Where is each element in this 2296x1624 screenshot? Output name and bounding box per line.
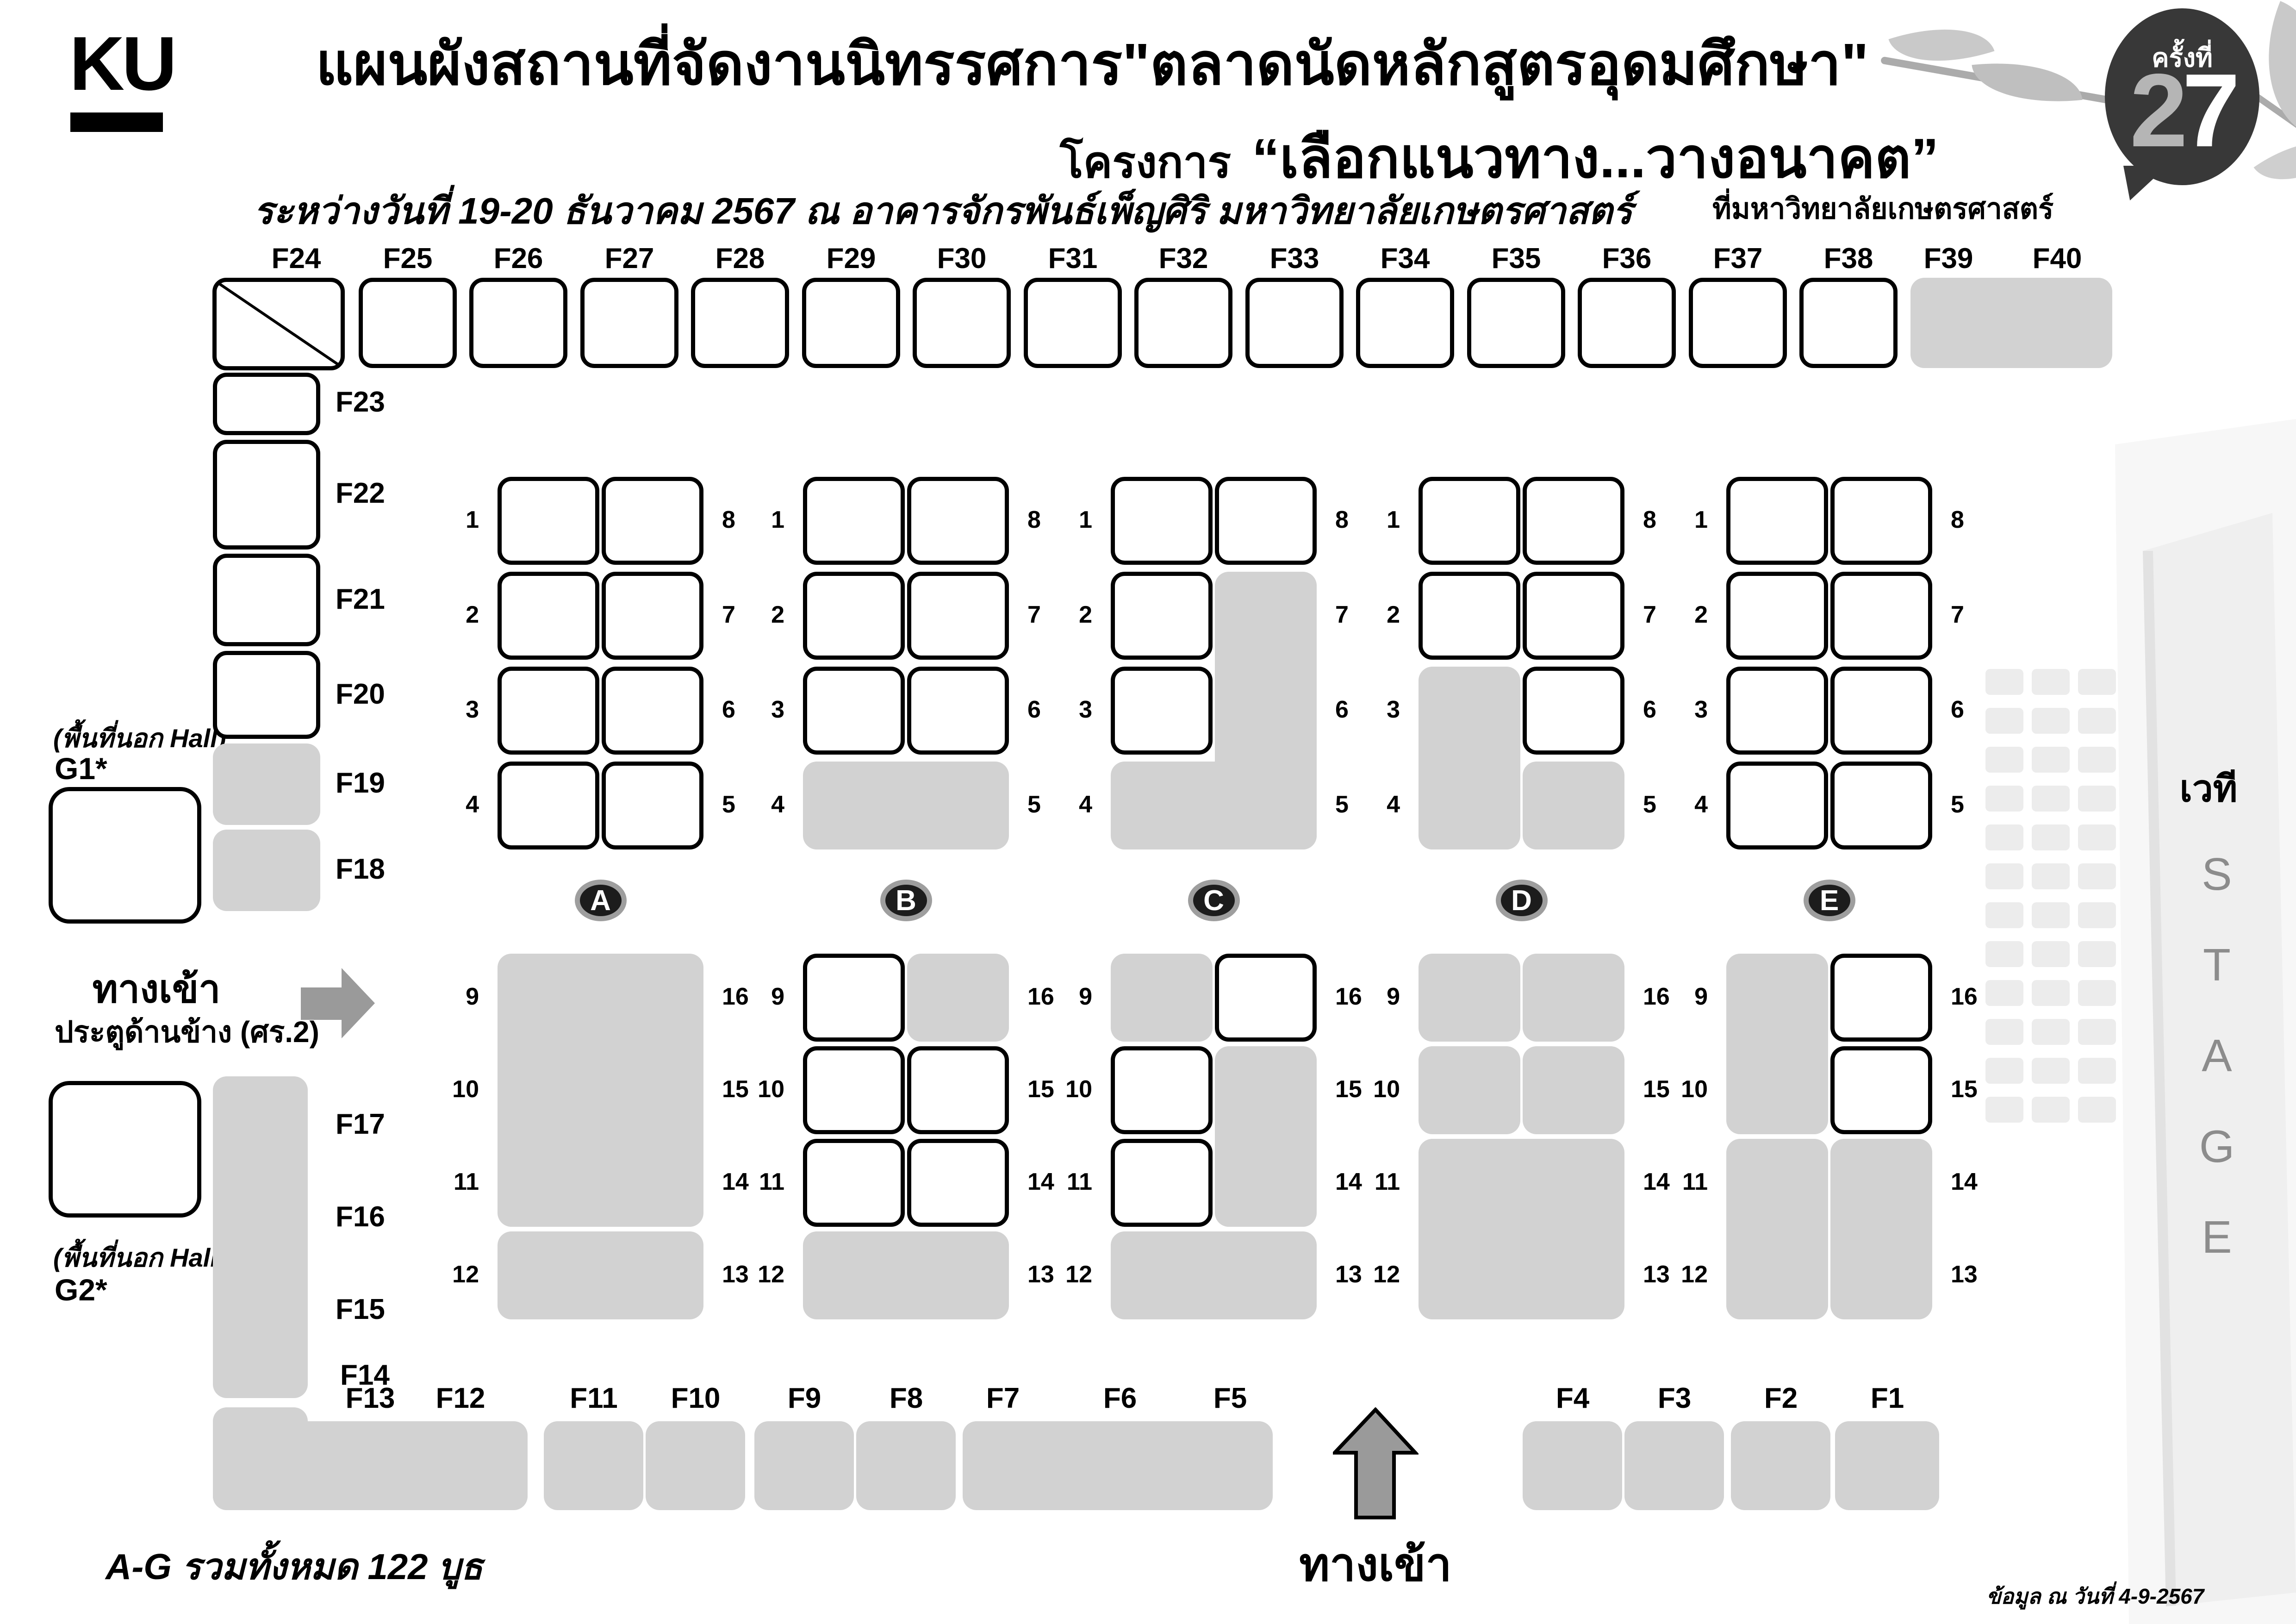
booth-C-12-13 <box>1111 1231 1317 1319</box>
booth-A-3 <box>498 667 599 755</box>
block-B-num-4: 4 <box>771 793 784 817</box>
audience-seat <box>2078 941 2116 967</box>
booth-F35 <box>1467 278 1565 368</box>
booth-F4 <box>1523 1421 1622 1510</box>
label-F2: F2 <box>1764 1384 1798 1413</box>
label-F31: F31 <box>1048 244 1098 273</box>
stage-letter: T <box>2203 919 2231 1010</box>
page-title: แผนผังสถานที่จัดงานนิทรรศการ"ตลาดนัดหลัก… <box>316 18 1869 110</box>
booth-A-12-13 <box>498 1231 703 1319</box>
block-A-num-8: 8 <box>722 508 735 532</box>
booth-A-2 <box>498 572 599 660</box>
booth-F9 <box>754 1421 854 1510</box>
booth-B-1 <box>803 477 905 565</box>
booth-E-6 <box>1830 667 1932 755</box>
bottom-entrance-arrow-icon <box>1333 1407 1419 1521</box>
block-D-num-16: 16 <box>1643 985 1670 1009</box>
booth-G2 <box>49 1081 201 1218</box>
booth-D-3-4 <box>1419 667 1520 849</box>
block-E-num-13: 13 <box>1951 1262 1978 1287</box>
audience-seat <box>2078 863 2116 889</box>
booth-B-2 <box>803 572 905 660</box>
label-F28: F28 <box>716 244 765 273</box>
block-C-num-9: 9 <box>1079 985 1092 1009</box>
bottom-entrance-title: ทางเข้า <box>1299 1528 1452 1601</box>
audience-seat <box>1985 941 2023 967</box>
booth-C-2 <box>1111 572 1213 660</box>
booth-G1 <box>49 787 201 924</box>
audience-seat <box>2032 1019 2070 1045</box>
block-C-num-3: 3 <box>1079 698 1092 722</box>
block-A-num-12: 12 <box>452 1262 479 1287</box>
label-F29: F29 <box>827 244 876 273</box>
label-F33: F33 <box>1270 244 1319 273</box>
block-E-num-10: 10 <box>1681 1077 1708 1101</box>
block-B-num-7: 7 <box>1027 603 1041 627</box>
booth-E-1 <box>1726 477 1828 565</box>
zone-badge-A: A <box>575 880 627 921</box>
audience-seat <box>2032 1097 2070 1123</box>
label-F37: F37 <box>1713 244 1763 273</box>
block-B-num-5: 5 <box>1027 793 1041 817</box>
booth-A-9-16 <box>498 954 703 1227</box>
label-F36: F36 <box>1602 244 1652 273</box>
booth-F38 <box>1799 278 1898 368</box>
floor-plan-canvas: เวที STAGE KU แผนผังสถานที่จัดงานนิทรรศก… <box>0 0 2296 1624</box>
booth-E-8 <box>1830 477 1932 565</box>
booth-C-15-14 <box>1215 1046 1317 1227</box>
edition-badge: ครั้งที่ 2 7 <box>2105 8 2259 185</box>
block-C-num-12: 12 <box>1065 1262 1092 1287</box>
label-F16: F16 <box>336 1203 385 1231</box>
block-A-num-9: 9 <box>466 985 479 1009</box>
booth-D-5 <box>1523 762 1624 849</box>
block-A-num-14: 14 <box>722 1170 749 1194</box>
audience-seat <box>1985 786 2023 812</box>
side-entrance-arrow-icon <box>301 965 377 1042</box>
location-note: ที่มหาวิทยาลัยเกษตรศาสตร์ <box>1712 186 2053 231</box>
booth-F20 <box>213 651 320 739</box>
booth-B-9 <box>803 954 905 1042</box>
booth-B-14 <box>907 1139 1009 1227</box>
booth-E-5 <box>1830 762 1932 849</box>
badge-digit-7: 7 <box>2182 58 2234 162</box>
audience-seat <box>2032 747 2070 773</box>
label-F34: F34 <box>1381 244 1430 273</box>
stage-label-en: STAGE <box>2199 829 2234 1282</box>
label-F17: F17 <box>336 1110 385 1139</box>
block-D-num-4: 4 <box>1387 793 1400 817</box>
booth-B-6 <box>907 667 1009 755</box>
booth-F17-F15 <box>213 1076 308 1398</box>
audience-seat <box>2032 786 2070 812</box>
booth-D-7 <box>1523 572 1624 660</box>
booth-A-4 <box>498 762 599 849</box>
audience-seat <box>1985 1058 2023 1084</box>
block-D-num-9: 9 <box>1387 985 1400 1009</box>
booth-D-11-14 <box>1419 1139 1624 1319</box>
booth-A-6 <box>602 667 703 755</box>
block-C-num-5: 5 <box>1335 793 1349 817</box>
side-entrance-subtitle: ประตูด้านข้าง (ศร.2) <box>55 1008 319 1056</box>
audience-seat <box>2078 1019 2116 1045</box>
booth-F2 <box>1731 1421 1830 1510</box>
label-F35: F35 <box>1492 244 1541 273</box>
block-C-num-14: 14 <box>1335 1170 1362 1194</box>
label-F1: F1 <box>1871 1384 1904 1413</box>
booth-B-10 <box>803 1046 905 1134</box>
block-D-num-13: 13 <box>1643 1262 1670 1287</box>
ku-logo: KU <box>69 25 174 102</box>
booth-B-8 <box>907 477 1009 565</box>
label-F18: F18 <box>336 855 385 884</box>
booth-D-9 <box>1419 954 1520 1042</box>
label-F7: F7 <box>986 1384 1020 1413</box>
block-C-num-1: 1 <box>1079 508 1092 532</box>
event-date-line: ระหว่างวันที่ 19-20 ธันวาคม 2567 ณ อาคาร… <box>254 181 1632 240</box>
block-B-num-14: 14 <box>1027 1170 1054 1194</box>
booth-F3 <box>1624 1421 1724 1510</box>
block-C-num-13: 13 <box>1335 1262 1362 1287</box>
label-F40: F40 <box>2033 244 2082 273</box>
booth-F7-F5 <box>963 1421 1273 1510</box>
block-A-num-16: 16 <box>722 985 749 1009</box>
badge-digit-2: 2 <box>2130 58 2182 162</box>
block-B-num-9: 9 <box>771 985 784 1009</box>
block-B-num-1: 1 <box>771 508 784 532</box>
booth-A-7 <box>602 572 703 660</box>
booth-F28 <box>691 278 789 368</box>
audience-seat <box>1985 669 2023 695</box>
booth-B-15 <box>907 1046 1009 1134</box>
booth-B-16 <box>907 954 1009 1042</box>
audience-seat <box>2032 980 2070 1006</box>
booth-F19 <box>213 743 320 825</box>
label-F30: F30 <box>937 244 987 273</box>
stage-letter: A <box>2202 1010 2232 1101</box>
label-F32: F32 <box>1159 244 1208 273</box>
block-C-num-6: 6 <box>1335 698 1349 722</box>
booth-E-9-10 <box>1726 954 1828 1134</box>
booth-F31 <box>1024 278 1122 368</box>
audience-seat <box>2032 941 2070 967</box>
stage-letter: E <box>2202 1192 2232 1282</box>
audience-seat <box>2032 1058 2070 1084</box>
block-A-num-1: 1 <box>466 508 479 532</box>
block-A-num-3: 3 <box>466 698 479 722</box>
block-B-num-13: 13 <box>1027 1262 1054 1287</box>
block-C-num-10: 10 <box>1065 1077 1092 1101</box>
booth-F33 <box>1245 278 1344 368</box>
audience-seat <box>2032 902 2070 928</box>
zone-badge-D: D <box>1496 880 1548 921</box>
label-F20: F20 <box>336 680 385 709</box>
block-B-num-12: 12 <box>758 1262 784 1287</box>
booth-F36 <box>1578 278 1676 368</box>
audience-seat <box>1985 1097 2023 1123</box>
block-E-num-1: 1 <box>1694 508 1708 532</box>
block-C-num-2: 2 <box>1079 603 1092 627</box>
total-booths-note: A-G รวมทั้งหมด 122 บูธ <box>106 1538 483 1595</box>
booth-D-2 <box>1419 572 1520 660</box>
audience-seat <box>1985 863 2023 889</box>
audience-seat <box>2078 980 2116 1006</box>
booth-F25 <box>359 278 457 368</box>
booth-C-1 <box>1111 477 1213 565</box>
booth-B-11 <box>803 1139 905 1227</box>
booth-A-5 <box>602 762 703 849</box>
audience-seat <box>2078 1097 2116 1123</box>
booth-F22 <box>213 440 320 550</box>
audience-seat <box>1985 747 2023 773</box>
label-F5: F5 <box>1213 1384 1247 1413</box>
block-D-num-3: 3 <box>1387 698 1400 722</box>
block-A-num-13: 13 <box>722 1262 749 1287</box>
block-A-num-11: 11 <box>454 1170 479 1194</box>
block-D-num-11: 11 <box>1375 1170 1400 1194</box>
block-B-num-2: 2 <box>771 603 784 627</box>
block-A-num-10: 10 <box>452 1077 479 1101</box>
audience-seat <box>2078 824 2116 850</box>
label-F39: F39 <box>1924 244 1973 273</box>
audience-seat <box>2032 669 2070 695</box>
booth-F21 <box>213 554 320 646</box>
label-F27: F27 <box>605 244 654 273</box>
audience-seat <box>1985 1019 2023 1045</box>
booth-F26 <box>469 278 567 368</box>
zone-badge-B: B <box>880 880 932 921</box>
block-D-num-12: 12 <box>1373 1262 1400 1287</box>
block-E-num-9: 9 <box>1694 985 1708 1009</box>
stage-letter: G <box>2199 1101 2234 1192</box>
block-C-num-16: 16 <box>1335 985 1362 1009</box>
booth-F8 <box>856 1421 956 1510</box>
booth-A-8 <box>602 477 703 565</box>
block-B-num-10: 10 <box>758 1077 784 1101</box>
label-F10: F10 <box>671 1384 721 1413</box>
label-F9: F9 <box>788 1384 821 1413</box>
label-F13: F13 <box>346 1384 395 1413</box>
booth-C-4-5 <box>1111 762 1317 849</box>
booth-C-8 <box>1215 477 1317 565</box>
block-A-num-5: 5 <box>722 793 735 817</box>
booth-F30 <box>913 278 1011 368</box>
booth-F18 <box>213 830 320 911</box>
data-as-of-note: ข้อมูล ณ วันที่ 4-9-2567 <box>1986 1580 2204 1613</box>
block-D-num-2: 2 <box>1387 603 1400 627</box>
booth-F32 <box>1134 278 1232 368</box>
booth-F23 <box>213 373 320 435</box>
block-E-num-3: 3 <box>1694 698 1708 722</box>
label-F3: F3 <box>1658 1384 1691 1413</box>
block-B-num-6: 6 <box>1027 698 1041 722</box>
booth-C-9 <box>1111 954 1213 1042</box>
label-F6: F6 <box>1103 1384 1137 1413</box>
block-D-num-14: 14 <box>1643 1170 1670 1194</box>
booth-F39-F40 <box>1910 278 2112 368</box>
booth-F37 <box>1689 278 1787 368</box>
label-F19: F19 <box>336 769 385 798</box>
block-D-num-1: 1 <box>1387 508 1400 532</box>
stage-label-thai: เวที <box>2180 759 2238 818</box>
block-B-num-15: 15 <box>1027 1077 1054 1101</box>
booth-E-15 <box>1830 1046 1932 1134</box>
label-F15: F15 <box>336 1295 385 1324</box>
block-B-num-16: 16 <box>1027 985 1054 1009</box>
label-F26: F26 <box>494 244 543 273</box>
booth-C-3 <box>1111 667 1213 755</box>
block-C-num-4: 4 <box>1079 793 1092 817</box>
block-E-num-15: 15 <box>1951 1077 1978 1101</box>
label-F8: F8 <box>890 1384 923 1413</box>
booth-C-10 <box>1111 1046 1213 1134</box>
audience-seat <box>2078 786 2116 812</box>
label-F24: F24 <box>272 244 321 273</box>
booth-D-8 <box>1523 477 1624 565</box>
booth-F13-F12 <box>213 1421 528 1510</box>
block-A-num-15: 15 <box>722 1077 749 1101</box>
booth-D-15 <box>1523 1046 1624 1134</box>
block-C-num-8: 8 <box>1335 508 1349 532</box>
block-D-num-10: 10 <box>1373 1077 1400 1101</box>
label-F11: F11 <box>570 1384 617 1413</box>
block-A-num-4: 4 <box>466 793 479 817</box>
label-F38: F38 <box>1824 244 1873 273</box>
booth-B-4-5 <box>803 762 1009 849</box>
block-C-num-11: 11 <box>1067 1170 1092 1194</box>
booth-D-6 <box>1523 667 1624 755</box>
audience-seat <box>1985 902 2023 928</box>
audience-seat <box>1985 708 2023 734</box>
block-B-num-11: 11 <box>759 1170 784 1194</box>
block-B-num-8: 8 <box>1027 508 1041 532</box>
label-F25: F25 <box>383 244 433 273</box>
booth-A-1 <box>498 477 599 565</box>
g1-label: G1* <box>55 751 107 786</box>
audience-seat <box>2078 669 2116 695</box>
block-D-num-7: 7 <box>1643 603 1656 627</box>
booth-C-16 <box>1215 954 1317 1042</box>
label-F22: F22 <box>336 479 385 508</box>
audience-seat <box>2078 902 2116 928</box>
block-C-num-7: 7 <box>1335 603 1349 627</box>
label-F21: F21 <box>336 585 385 614</box>
booth-D-16 <box>1523 954 1624 1042</box>
booth-E-2 <box>1726 572 1828 660</box>
block-E-num-6: 6 <box>1951 698 1964 722</box>
g2-label: G2* <box>55 1272 107 1307</box>
booth-F1 <box>1835 1421 1939 1510</box>
booth-B-7 <box>907 572 1009 660</box>
label-F12: F12 <box>436 1384 485 1413</box>
block-E-num-2: 2 <box>1694 603 1708 627</box>
block-E-num-8: 8 <box>1951 508 1964 532</box>
booth-F10 <box>646 1421 745 1510</box>
corner-diagonal-line <box>217 282 341 366</box>
block-D-num-5: 5 <box>1643 793 1656 817</box>
booth-E-3 <box>1726 667 1828 755</box>
booth-D-10 <box>1419 1046 1520 1134</box>
audience-seat <box>2078 747 2116 773</box>
zone-badge-C: C <box>1188 880 1240 921</box>
block-C-num-15: 15 <box>1335 1077 1362 1101</box>
ku-logo-underline <box>70 112 163 132</box>
booth-F27 <box>580 278 678 368</box>
block-E-num-7: 7 <box>1951 603 1964 627</box>
block-A-num-2: 2 <box>466 603 479 627</box>
block-E-num-11: 11 <box>1682 1170 1708 1194</box>
audience-seat <box>2032 863 2070 889</box>
block-E-num-4: 4 <box>1694 793 1708 817</box>
audience-seat <box>1985 824 2023 850</box>
block-E-num-14: 14 <box>1951 1170 1978 1194</box>
audience-seat <box>1985 980 2023 1006</box>
block-E-num-5: 5 <box>1951 793 1964 817</box>
booth-F24 <box>212 278 345 370</box>
block-D-num-8: 8 <box>1643 508 1656 532</box>
block-A-num-6: 6 <box>722 698 735 722</box>
block-B-num-3: 3 <box>771 698 784 722</box>
block-D-num-15: 15 <box>1643 1077 1670 1101</box>
booth-E-4 <box>1726 762 1828 849</box>
block-A-num-7: 7 <box>722 603 735 627</box>
booth-E-11-12 <box>1726 1139 1828 1319</box>
zone-badge-E: E <box>1804 880 1855 921</box>
booth-D-1 <box>1419 477 1520 565</box>
booth-B-12-13 <box>803 1231 1009 1319</box>
booth-B-3 <box>803 667 905 755</box>
block-E-num-16: 16 <box>1951 985 1978 1009</box>
block-D-num-6: 6 <box>1643 698 1656 722</box>
block-E-num-12: 12 <box>1681 1262 1708 1287</box>
badge-number: 2 7 <box>2130 58 2234 162</box>
booth-F29 <box>802 278 900 368</box>
booth-F34 <box>1356 278 1454 368</box>
audience-seat <box>2032 824 2070 850</box>
booth-C-11 <box>1111 1139 1213 1227</box>
audience-seat <box>2078 1058 2116 1084</box>
booth-E-16 <box>1830 954 1932 1042</box>
booth-F11 <box>544 1421 643 1510</box>
stage-letter: S <box>2202 829 2232 919</box>
audience-seat <box>2032 708 2070 734</box>
label-F23: F23 <box>336 388 385 417</box>
label-F4: F4 <box>1556 1384 1589 1413</box>
audience-seat <box>2078 708 2116 734</box>
booth-E-13-14 <box>1830 1139 1932 1319</box>
booth-E-7 <box>1830 572 1932 660</box>
